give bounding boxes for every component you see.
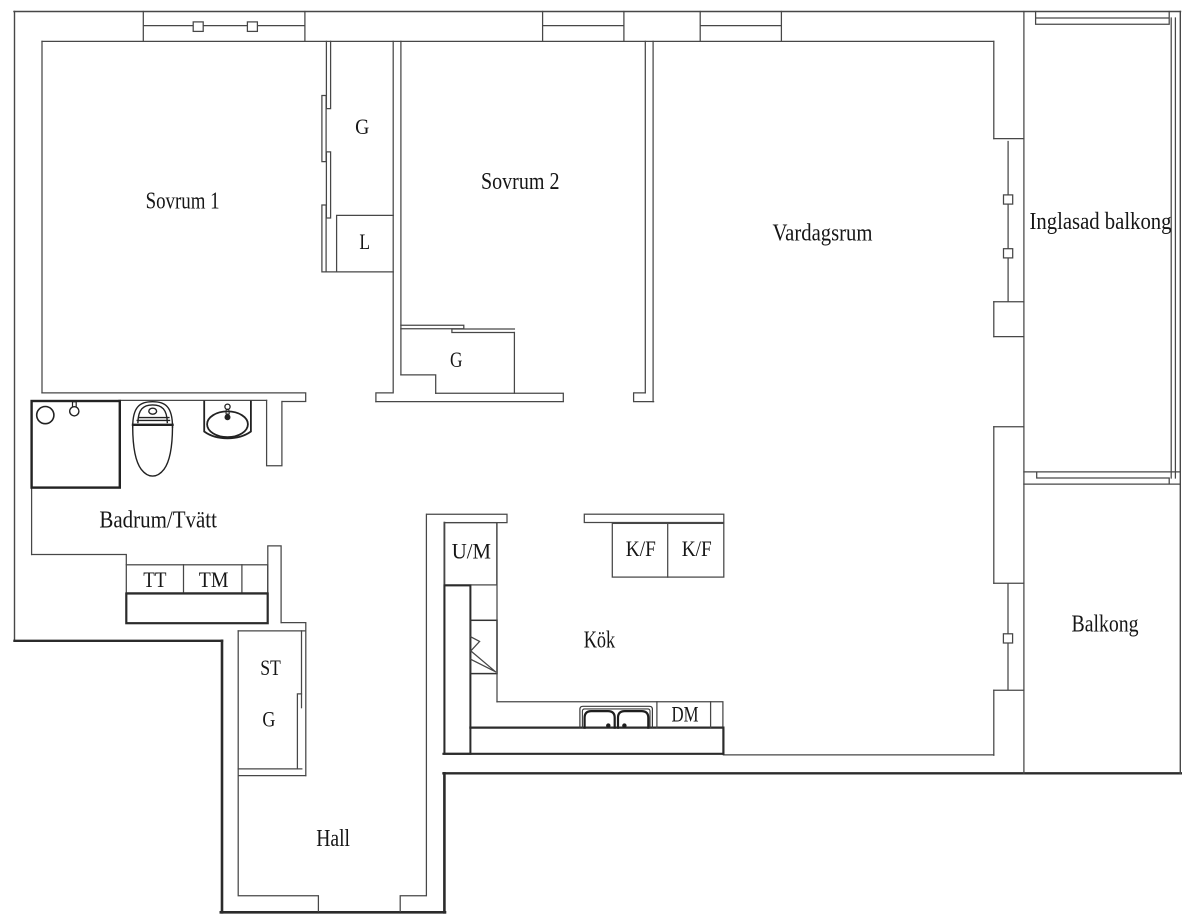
- svg-text:Inglasad balkong: Inglasad balkong: [1030, 209, 1172, 235]
- svg-text:TT: TT: [143, 567, 167, 592]
- svg-text:K/F: K/F: [626, 536, 656, 561]
- svg-text:G: G: [450, 347, 463, 372]
- svg-text:Sovrum 2: Sovrum 2: [481, 169, 560, 195]
- svg-text:TM: TM: [199, 567, 229, 592]
- svg-text:G: G: [355, 114, 369, 139]
- svg-text:Vardagsrum: Vardagsrum: [773, 221, 873, 247]
- svg-text:Badrum/Tvätt: Badrum/Tvätt: [99, 507, 217, 533]
- svg-text:Hall: Hall: [316, 826, 350, 852]
- svg-text:Balkong: Balkong: [1072, 612, 1139, 638]
- svg-text:DM: DM: [672, 701, 699, 726]
- svg-text:Sovrum 1: Sovrum 1: [146, 188, 220, 214]
- svg-text:G: G: [262, 707, 275, 732]
- svg-text:K/F: K/F: [682, 536, 712, 561]
- svg-text:L: L: [359, 229, 370, 254]
- svg-text:ST: ST: [260, 655, 281, 680]
- svg-text:U/M: U/M: [452, 539, 491, 564]
- svg-text:Kök: Kök: [584, 628, 616, 654]
